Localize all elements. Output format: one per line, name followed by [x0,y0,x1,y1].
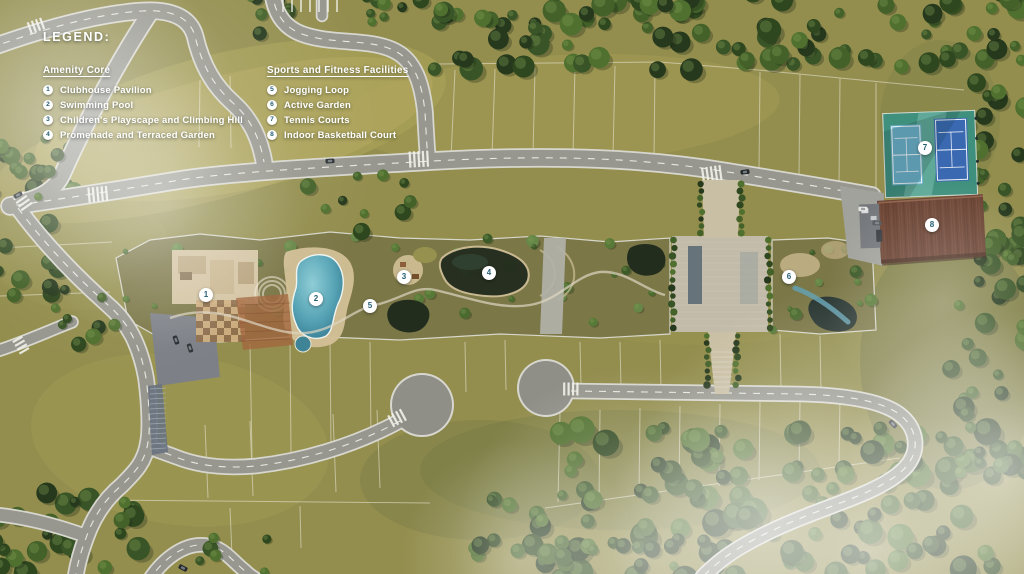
legend-number-badge: 1 [43,85,53,95]
legend-heading-sports-fitness: Sports and Fitness Facilities [267,65,409,76]
map-marker-8-indoor-basketball-court: 8 [925,218,939,232]
legend-item-swimming-pool: 2 Swimming Pool [43,100,267,110]
map-marker-7-tennis-courts: 7 [918,141,932,155]
site-plan-map: LEGEND: Amenity Core 1 Clubhouse Pavilio… [0,0,1024,574]
legend-heading-amenity-core: Amenity Core [43,65,267,76]
map-legend: LEGEND: Amenity Core 1 Clubhouse Pavilio… [43,30,409,145]
legend-title: LEGEND: [43,30,409,44]
map-marker-1-clubhouse-pavilion: 1 [199,288,213,302]
map-marker-2-swimming-pool: 2 [309,292,323,306]
legend-number-badge: 7 [267,115,277,125]
legend-number-badge: 5 [267,85,277,95]
legend-column-amenity-core: Amenity Core 1 Clubhouse Pavilion 2 Swim… [43,65,267,145]
legend-item-indoor-basketball: 8 Indoor Basketball Court [267,130,409,140]
legend-item-promenade: 4 Promenade and Terraced Garden [43,130,267,140]
legend-item-jogging-loop: 5 Jogging Loop [267,85,409,95]
legend-number-badge: 2 [43,100,53,110]
legend-number-badge: 6 [267,100,277,110]
legend-number-badge: 3 [43,115,53,125]
map-marker-3-children-s-playscape-and-climbing-hill: 3 [397,270,411,284]
map-marker-5-jogging-loop: 5 [363,299,377,313]
legend-item-clubhouse-pavilion: 1 Clubhouse Pavilion [43,85,267,95]
legend-item-tennis-courts: 7 Tennis Courts [267,115,409,125]
legend-number-badge: 4 [43,130,53,140]
legend-number-badge: 8 [267,130,277,140]
legend-item-active-garden: 6 Active Garden [267,100,409,110]
legend-item-childrens-playscape: 3 Children's Playscape and Climbing Hill [43,115,267,125]
legend-column-sports-fitness: Sports and Fitness Facilities 5 Jogging … [267,65,409,145]
map-marker-6-active-garden: 6 [782,270,796,284]
map-marker-4-promenade-and-terraced-garden: 4 [482,266,496,280]
